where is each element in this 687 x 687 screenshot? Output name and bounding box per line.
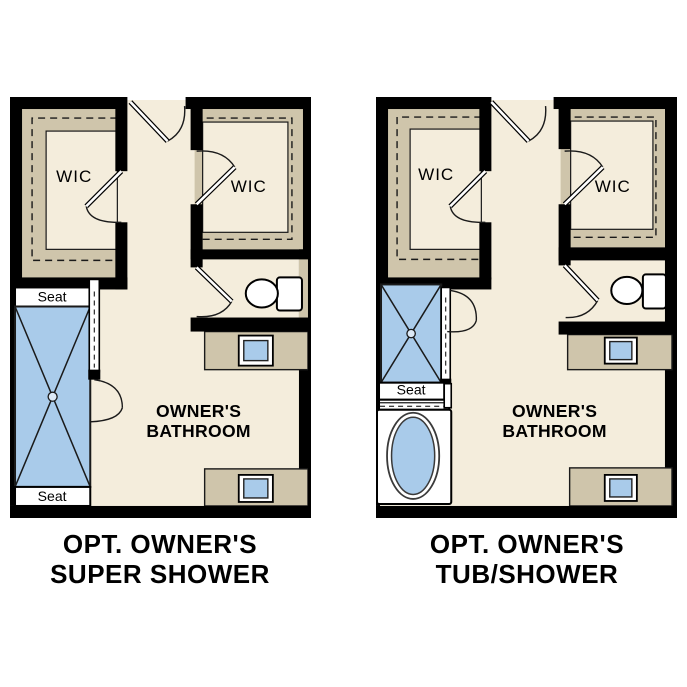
plan-title-super-shower: OPT. OWNER'S SUPER SHOWER xyxy=(0,529,320,589)
wic-left-label: WIC xyxy=(418,165,454,184)
seat-top-label: Seat xyxy=(38,288,67,304)
vanity-upper xyxy=(205,332,308,370)
wic-right-label: WIC xyxy=(231,177,267,196)
vanity-lower xyxy=(570,468,672,506)
floorplan-tub-shower: WIC WIC Seat OWNER'S BATHROOM xyxy=(376,97,677,518)
sink-lower xyxy=(244,479,268,498)
sink-upper xyxy=(244,341,268,361)
shower-drain xyxy=(407,329,415,337)
plan-title-tub-shower: OPT. OWNER'S TUB/SHOWER xyxy=(367,529,687,589)
tub-deck-step xyxy=(379,400,449,410)
bathroom-label-line1: OWNER'S xyxy=(512,401,597,421)
bathroom-label-line1: OWNER'S xyxy=(156,401,241,421)
wic-left-label: WIC xyxy=(56,167,92,186)
vanity-upper xyxy=(568,335,672,370)
bathtub xyxy=(377,410,451,504)
plan-title-line1: OPT. OWNER'S xyxy=(0,529,320,559)
floor-plan-sheet: WIC WIC Seat Seat OWNER'S BATHROOM xyxy=(0,0,687,687)
floorplan-super-shower: WIC WIC Seat Seat OWNER'S BATHROOM xyxy=(10,97,311,518)
wic-right-label: WIC xyxy=(595,177,631,196)
vanity-lower xyxy=(205,469,308,506)
plan-title-line1: OPT. OWNER'S xyxy=(367,529,687,559)
shower-drain xyxy=(48,392,57,401)
seat-bottom-label: Seat xyxy=(38,488,67,504)
sink-lower xyxy=(610,479,632,497)
bathroom-label-line2: BATHROOM xyxy=(502,421,606,441)
wic-left xyxy=(386,107,481,279)
plan-title-line2: SUPER SHOWER xyxy=(0,559,320,589)
sink-upper xyxy=(610,342,632,360)
seat-label: Seat xyxy=(397,382,426,398)
bathroom-label-line2: BATHROOM xyxy=(146,421,250,441)
plan-title-line2: TUB/SHOWER xyxy=(367,559,687,589)
